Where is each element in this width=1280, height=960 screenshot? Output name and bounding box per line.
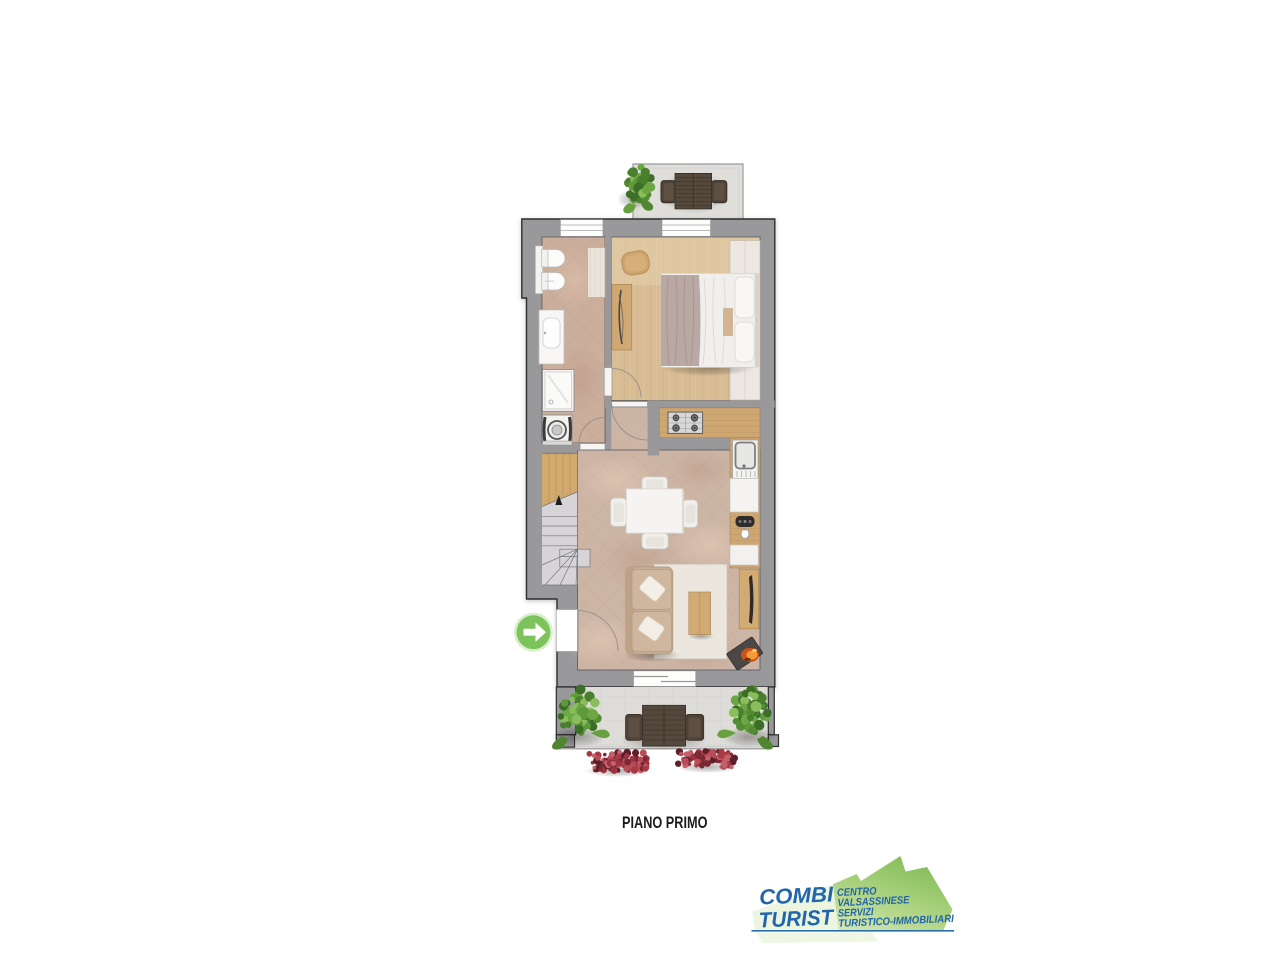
svg-text:TURIST: TURIST [758,905,835,932]
svg-text:PIANO PRIMO: PIANO PRIMO [622,813,708,832]
